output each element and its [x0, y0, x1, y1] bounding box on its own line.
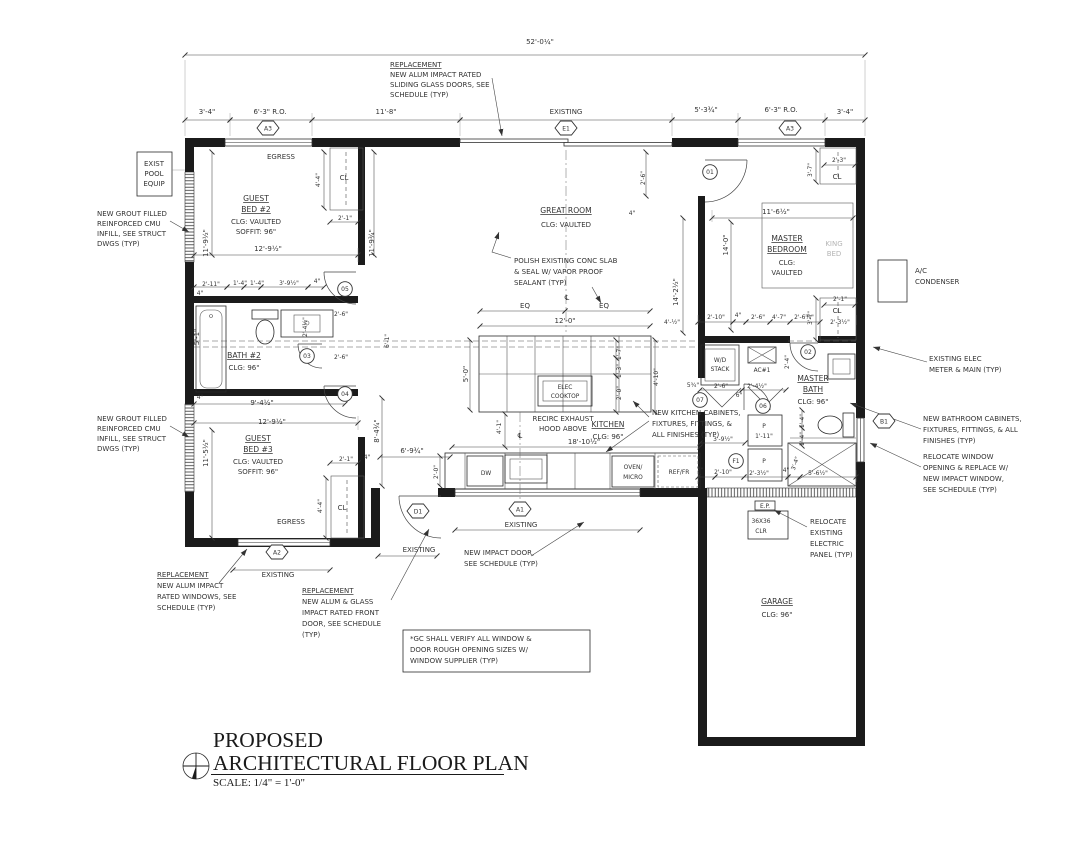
- label-pool-3: EQUIP: [143, 180, 164, 188]
- dim-label: 2'-3": [832, 158, 846, 164]
- dim-label: 12'-9½": [254, 245, 282, 253]
- dim-label: 3'-4": [199, 108, 216, 116]
- oven-micro: [612, 456, 654, 487]
- room-guest-bed-2: GUEST: [243, 194, 269, 203]
- label-egress-top: EGRESS: [267, 153, 296, 161]
- dim-label: 6'-3" R.O.: [764, 106, 797, 114]
- hex-marker-label: A3: [786, 125, 794, 132]
- dim-label: EQ: [520, 302, 530, 310]
- note-cmu2-4: DWGS (TYP): [97, 445, 140, 453]
- note-slab-2: & SEAL W/ VAPOR PROOF: [514, 268, 603, 276]
- pantry-1: [748, 415, 782, 446]
- note-reloc-win-3: NEW IMPACT WINDOW,: [923, 475, 1004, 483]
- circle-marker-label: 04: [341, 391, 349, 398]
- dim-label: 4": [735, 313, 742, 319]
- note-gc-3: WINDOW SUPPLIER (TYP): [410, 657, 498, 665]
- note-reloc-win-2: OPENING & REPLACE W/: [923, 464, 1009, 472]
- dim-label: 2'-1": [339, 457, 353, 463]
- circle-marker-label: 06: [759, 403, 767, 410]
- note-front-door-4: DOOR, SEE SCHEDULE: [302, 620, 381, 628]
- room-great-room: GREAT ROOM: [540, 206, 591, 215]
- dim-label: 2'-10": [707, 315, 725, 321]
- egress-window-guest3: [238, 539, 330, 546]
- dim-label: CLG:: [779, 259, 796, 267]
- dim-label: 12'-0": [554, 317, 575, 325]
- room-master-bedroom: MASTER: [771, 234, 803, 243]
- clear-space-box: [748, 511, 788, 539]
- note-bath-cab-3: FINISHES (TYP): [923, 437, 976, 445]
- dim-overall: 52'-0¼": [526, 38, 554, 46]
- dim-label: CLG: VAULTED: [541, 221, 591, 229]
- note-kitchen-cab-2: FIXTURES, FITTINGS, &: [652, 420, 732, 428]
- dim-label: 5'-0": [462, 366, 470, 383]
- dim-label: 4": [629, 211, 636, 217]
- dim-label: 6'-3" R.O.: [253, 108, 286, 116]
- note-bath-cab-1: NEW BATHROOM CABINETS,: [923, 415, 1022, 423]
- dim-label: 1'-4": [233, 281, 247, 287]
- dim-label: 6'-9¾": [400, 447, 423, 455]
- cmu-infill-top: [185, 172, 194, 262]
- hex-marker-label: A2: [273, 549, 281, 556]
- note-cmu2-3: INFILL, SEE STRUCT: [97, 435, 167, 443]
- hex-marker-label: D1: [414, 508, 423, 515]
- dim-label: 2'-6⅝": [794, 315, 814, 321]
- dim-label: 2'-4": [785, 355, 791, 369]
- label-dishwasher: DW: [481, 471, 492, 477]
- room-master-bath: MASTER: [797, 374, 829, 383]
- kitchen-sink: [505, 455, 547, 483]
- dim-label: 5'-6½": [808, 470, 828, 477]
- note-slab-1: POLISH EXISTING CONC SLAB: [514, 257, 618, 265]
- note-hood-1: RECIRC EXHAUST: [533, 415, 595, 423]
- dim-label: 4'-4": [318, 499, 324, 513]
- note-cmu1-4: DWGS (TYP): [97, 240, 140, 248]
- dim-label: 2'-6": [641, 171, 647, 185]
- sliding-glass-door: [460, 139, 672, 146]
- dim-label: 7": [697, 468, 704, 474]
- dim-label: 12'-9½": [258, 418, 286, 426]
- bathtub: [196, 306, 226, 392]
- circle-marker-label: 02: [804, 349, 812, 356]
- label-wd-stack: STACK: [711, 367, 730, 373]
- note-meter-1: EXISTING ELEC: [929, 355, 982, 363]
- room-guest-bed-2: BED #2: [241, 205, 271, 214]
- kitchen-island: [479, 336, 651, 412]
- dim-label: 11'-9½": [202, 229, 210, 257]
- dim-label: 11'-6½": [762, 208, 790, 216]
- hex-marker-label: B1: [880, 418, 888, 425]
- dim-label: 4": [364, 455, 371, 461]
- room-master-bedroom: BEDROOM: [767, 245, 807, 254]
- dim-label: 6'-1": [385, 334, 391, 348]
- label-closet: CL: [833, 307, 842, 315]
- note-cmu2-1: NEW GROUT FILLED: [97, 415, 167, 423]
- label-wd-stack: W/D: [714, 358, 727, 364]
- label-elec-panel: E.P.: [760, 504, 770, 510]
- dim-label: 11'-5½": [202, 439, 210, 467]
- dim-label: EQ: [599, 302, 609, 310]
- room-master-bath: BATH: [803, 385, 823, 394]
- dim-label: 14'-2½": [672, 278, 680, 306]
- dim-label: VAULTED: [771, 269, 802, 277]
- floor-plan-drawing: A3E1A3A2D1A1B101020503040706F1 52'-0¼"RE…: [0, 0, 1080, 849]
- dim-label: 5'-1": [193, 329, 201, 346]
- dim-label: 3'-4": [837, 108, 854, 116]
- dim-label: 2'-6": [334, 355, 348, 361]
- note-impact-door-2: SEE SCHEDULE (TYP): [464, 560, 538, 568]
- sheet-title-line1: PROPOSED: [213, 728, 323, 752]
- dim-label: 3'-9½": [279, 280, 299, 287]
- window-master: [738, 139, 825, 146]
- room-bath-2: BATH #2: [227, 351, 261, 360]
- master-bath-sink: [828, 354, 855, 379]
- note-cmu1-2: REINFORCED CMU: [97, 220, 161, 228]
- dim-label: 2'-3½": [830, 319, 850, 326]
- dim-label: 6": [736, 393, 743, 399]
- dim-label: 4": [314, 279, 321, 285]
- dim-label: 2'-3½": [749, 470, 769, 477]
- label-king-bed: BED: [827, 250, 842, 258]
- wd-stack: [701, 345, 739, 385]
- label-clear-2: CLR: [755, 529, 767, 535]
- note-panel-1: RELOCATE: [810, 518, 846, 526]
- dim-label: SOFFIT: 96": [236, 228, 276, 236]
- label-oven: OVEN/: [624, 465, 643, 471]
- dim-label: CLG: 96": [762, 611, 793, 619]
- dim-label: 1'-7": [617, 346, 623, 360]
- note-bath-cab-2: FIXTURES, FITTINGS, & ALL: [923, 426, 1018, 434]
- cooktop: [538, 376, 592, 406]
- dim-label: 2'-6": [714, 384, 728, 390]
- note-reloc-win-1: RELOCATE WINDOW: [923, 453, 994, 461]
- label-pantry: P: [762, 459, 766, 465]
- dim-label: 2'-0": [434, 465, 440, 479]
- note-front-door-1: REPLACEMENT: [302, 587, 354, 595]
- dim-label: EXISTING: [262, 571, 295, 579]
- label-closet: CL: [340, 174, 349, 182]
- note-front-door-2: NEW ALUM & GLASS: [302, 598, 374, 606]
- label-pantry: P: [762, 424, 766, 430]
- note-repl-win-4: SCHEDULE (TYP): [157, 604, 216, 612]
- note-panel-4: PANEL (TYP): [810, 551, 853, 559]
- hex-marker-label: A3: [264, 125, 272, 132]
- dim-label: 9'-4½": [250, 399, 273, 407]
- dim-label: CLG: VAULTED: [233, 458, 283, 466]
- note-panel-2: EXISTING: [810, 529, 843, 537]
- label-ac-cond-2: CONDENSER: [915, 278, 960, 286]
- label-pool-1: EXIST: [144, 160, 165, 168]
- cmu-infill-bottom: [185, 404, 194, 492]
- dim-label: 4'-10": [654, 368, 660, 386]
- egress-window-guest2: [225, 139, 312, 146]
- dim-label: 5'-3¾": [694, 106, 717, 114]
- dim-label: 1'-11": [755, 434, 773, 440]
- dim-label: EXISTING: [403, 546, 436, 554]
- dim-label: 2'-0": [617, 386, 623, 400]
- room-garage: GARAGE: [761, 597, 793, 606]
- note-slider-3: SLIDING GLASS DOORS, SEE: [390, 81, 490, 89]
- note-slider-4: SCHEDULE (TYP): [390, 91, 449, 99]
- note-cmu1-3: INFILL, SEE STRUCT: [97, 230, 167, 238]
- dim-label: 4": [197, 395, 204, 401]
- dim-label: 1'-4": [800, 414, 806, 428]
- dim-label: 11'-9¾": [368, 229, 376, 257]
- note-meter-2: METER & MAIN (TYP): [929, 366, 1002, 374]
- dim-label: 4": [197, 291, 204, 297]
- dim-label: 4'-1": [497, 420, 503, 434]
- circle-marker-label: 03: [303, 353, 311, 360]
- note-repl-win-3: RATED WINDOWS, SEE: [157, 593, 236, 601]
- dim-label: 2'-10": [714, 470, 732, 476]
- dim-label: 4": [783, 468, 790, 474]
- note-front-door-5: (TYP): [302, 631, 321, 639]
- circle-marker-label: 05: [341, 286, 349, 293]
- north-target-symbol: [183, 753, 209, 779]
- label-king-bed: KING: [825, 240, 842, 248]
- dim-label: EXISTING: [505, 521, 538, 529]
- circle-marker-label: 01: [706, 169, 714, 176]
- dim-label: 2'-11": [202, 282, 220, 288]
- note-panel-3: ELECTRIC: [810, 540, 844, 548]
- note-gc-2: DOOR ROUGH OPENING SIZES W/: [410, 646, 529, 654]
- bifold-doors: [703, 388, 783, 407]
- note-impact-door-1: NEW IMPACT DOOR,: [464, 549, 534, 557]
- ac1-unit: [748, 347, 776, 363]
- fixtures: [137, 148, 907, 672]
- dim-label: 2'-1": [338, 216, 352, 222]
- note-kitchen-cab-1: NEW KITCHEN CABINETS,: [652, 409, 741, 417]
- note-front-door-3: IMPACT RATED FRONT: [302, 609, 380, 617]
- ac-condenser-box: [878, 260, 907, 302]
- circle-marker-label: F1: [732, 458, 739, 465]
- dim-label: 18'-10½": [568, 438, 600, 446]
- note-cmu1-1: NEW GROUT FILLED: [97, 210, 167, 218]
- dim-label: 1'-4": [250, 281, 264, 287]
- note-reloc-win-4: SEE SCHEDULE (TYP): [923, 486, 997, 494]
- dim-label: 2'-1": [833, 297, 847, 303]
- note-gc-1: *GC SHALL VERIFY ALL WINDOW &: [410, 635, 532, 643]
- label-ac-cond-1: A/C: [915, 267, 927, 275]
- centerline-symbol: ℄: [518, 432, 523, 440]
- dim-label: 14'-0": [722, 234, 730, 255]
- label-clear-1: 36X36: [751, 519, 770, 525]
- dim-label: 4'-½": [664, 319, 680, 326]
- label-cooktop: COOKTOP: [551, 394, 580, 400]
- room-guest-bed-3: BED #3: [243, 445, 273, 454]
- door-swings: [298, 160, 818, 538]
- dim-label: 3'-9½": [713, 436, 733, 443]
- hex-marker-label: E1: [562, 125, 570, 132]
- note-slider-1: REPLACEMENT: [390, 61, 442, 69]
- dim-label: CLG: VAULTED: [231, 218, 281, 226]
- floor-plan-sheet: A3E1A3A2D1A1B101020503040706F1 52'-0¼"RE…: [0, 0, 1080, 849]
- label-cooktop: ELEC: [558, 385, 573, 391]
- note-repl-win-1: REPLACEMENT: [157, 571, 209, 579]
- note-slider-2: NEW ALUM IMPACT RATED: [390, 71, 481, 79]
- toilet: [252, 310, 278, 344]
- dim-label: EXISTING: [550, 108, 583, 116]
- garage-front-wall-hatch: [707, 488, 856, 497]
- label-oven: MICRO: [623, 475, 643, 481]
- circle-marker-label: 07: [696, 397, 704, 404]
- dim-label: SOFFIT: 96": [238, 468, 278, 476]
- dim-label: 3'-7": [808, 163, 814, 177]
- sheet-title-line2: ARCHITECTURAL FLOOR PLAN: [213, 751, 529, 775]
- label-fridge: REF/FR: [669, 470, 690, 476]
- centerline-symbol: ℄: [565, 294, 570, 302]
- note-slab-3: SEALANT (TYP): [514, 279, 567, 287]
- dim-label: 4'-4": [316, 173, 322, 187]
- dim-label: 8'-4¾": [373, 419, 381, 442]
- dim-label: 4'-7": [772, 315, 786, 321]
- label-closet: CL: [833, 173, 842, 181]
- hex-marker-label: A1: [516, 506, 524, 513]
- dim-label: 1'-4": [800, 432, 806, 446]
- dim-label: 2'-4½": [747, 383, 767, 390]
- cmu-infill-walls: [185, 172, 856, 497]
- label-egress-bottom: EGRESS: [277, 518, 306, 526]
- dim-label: 2'-6": [334, 312, 348, 318]
- label-ac1: AC#1: [754, 368, 771, 374]
- dim-label: 2'-4½": [302, 317, 309, 337]
- note-cmu2-2: REINFORCED CMU: [97, 425, 161, 433]
- bath-window-b1: [857, 418, 864, 462]
- sheet-scale: SCALE: 1/4" = 1'-0": [213, 777, 305, 789]
- dim-label: 5¾": [687, 383, 699, 389]
- kitchen-window: [455, 489, 640, 496]
- exterior-walls: [185, 138, 865, 746]
- dim-label: 2'-6": [751, 315, 765, 321]
- master-toilet: [818, 413, 854, 437]
- dim-label: 11'-8": [375, 108, 396, 116]
- dim-label: 3'-4": [791, 456, 802, 471]
- label-pool-2: POOL: [144, 170, 163, 178]
- label-closet: CL: [338, 504, 347, 512]
- dim-label: CLG: 96": [798, 398, 829, 406]
- note-kitchen-cab-3: ALL FINISHES (TYP): [652, 431, 720, 439]
- room-kitchen: KITCHEN: [592, 420, 625, 429]
- room-guest-bed-3: GUEST: [245, 434, 271, 443]
- dim-label: 1'-3": [617, 364, 623, 378]
- dim-label: CLG: 96": [229, 364, 260, 372]
- note-hood-2: HOOD ABOVE: [539, 425, 587, 433]
- note-repl-win-2: NEW ALUM IMPACT: [157, 582, 224, 590]
- title-block: PROPOSED ARCHITECTURAL FLOOR PLAN SCALE:…: [183, 728, 529, 789]
